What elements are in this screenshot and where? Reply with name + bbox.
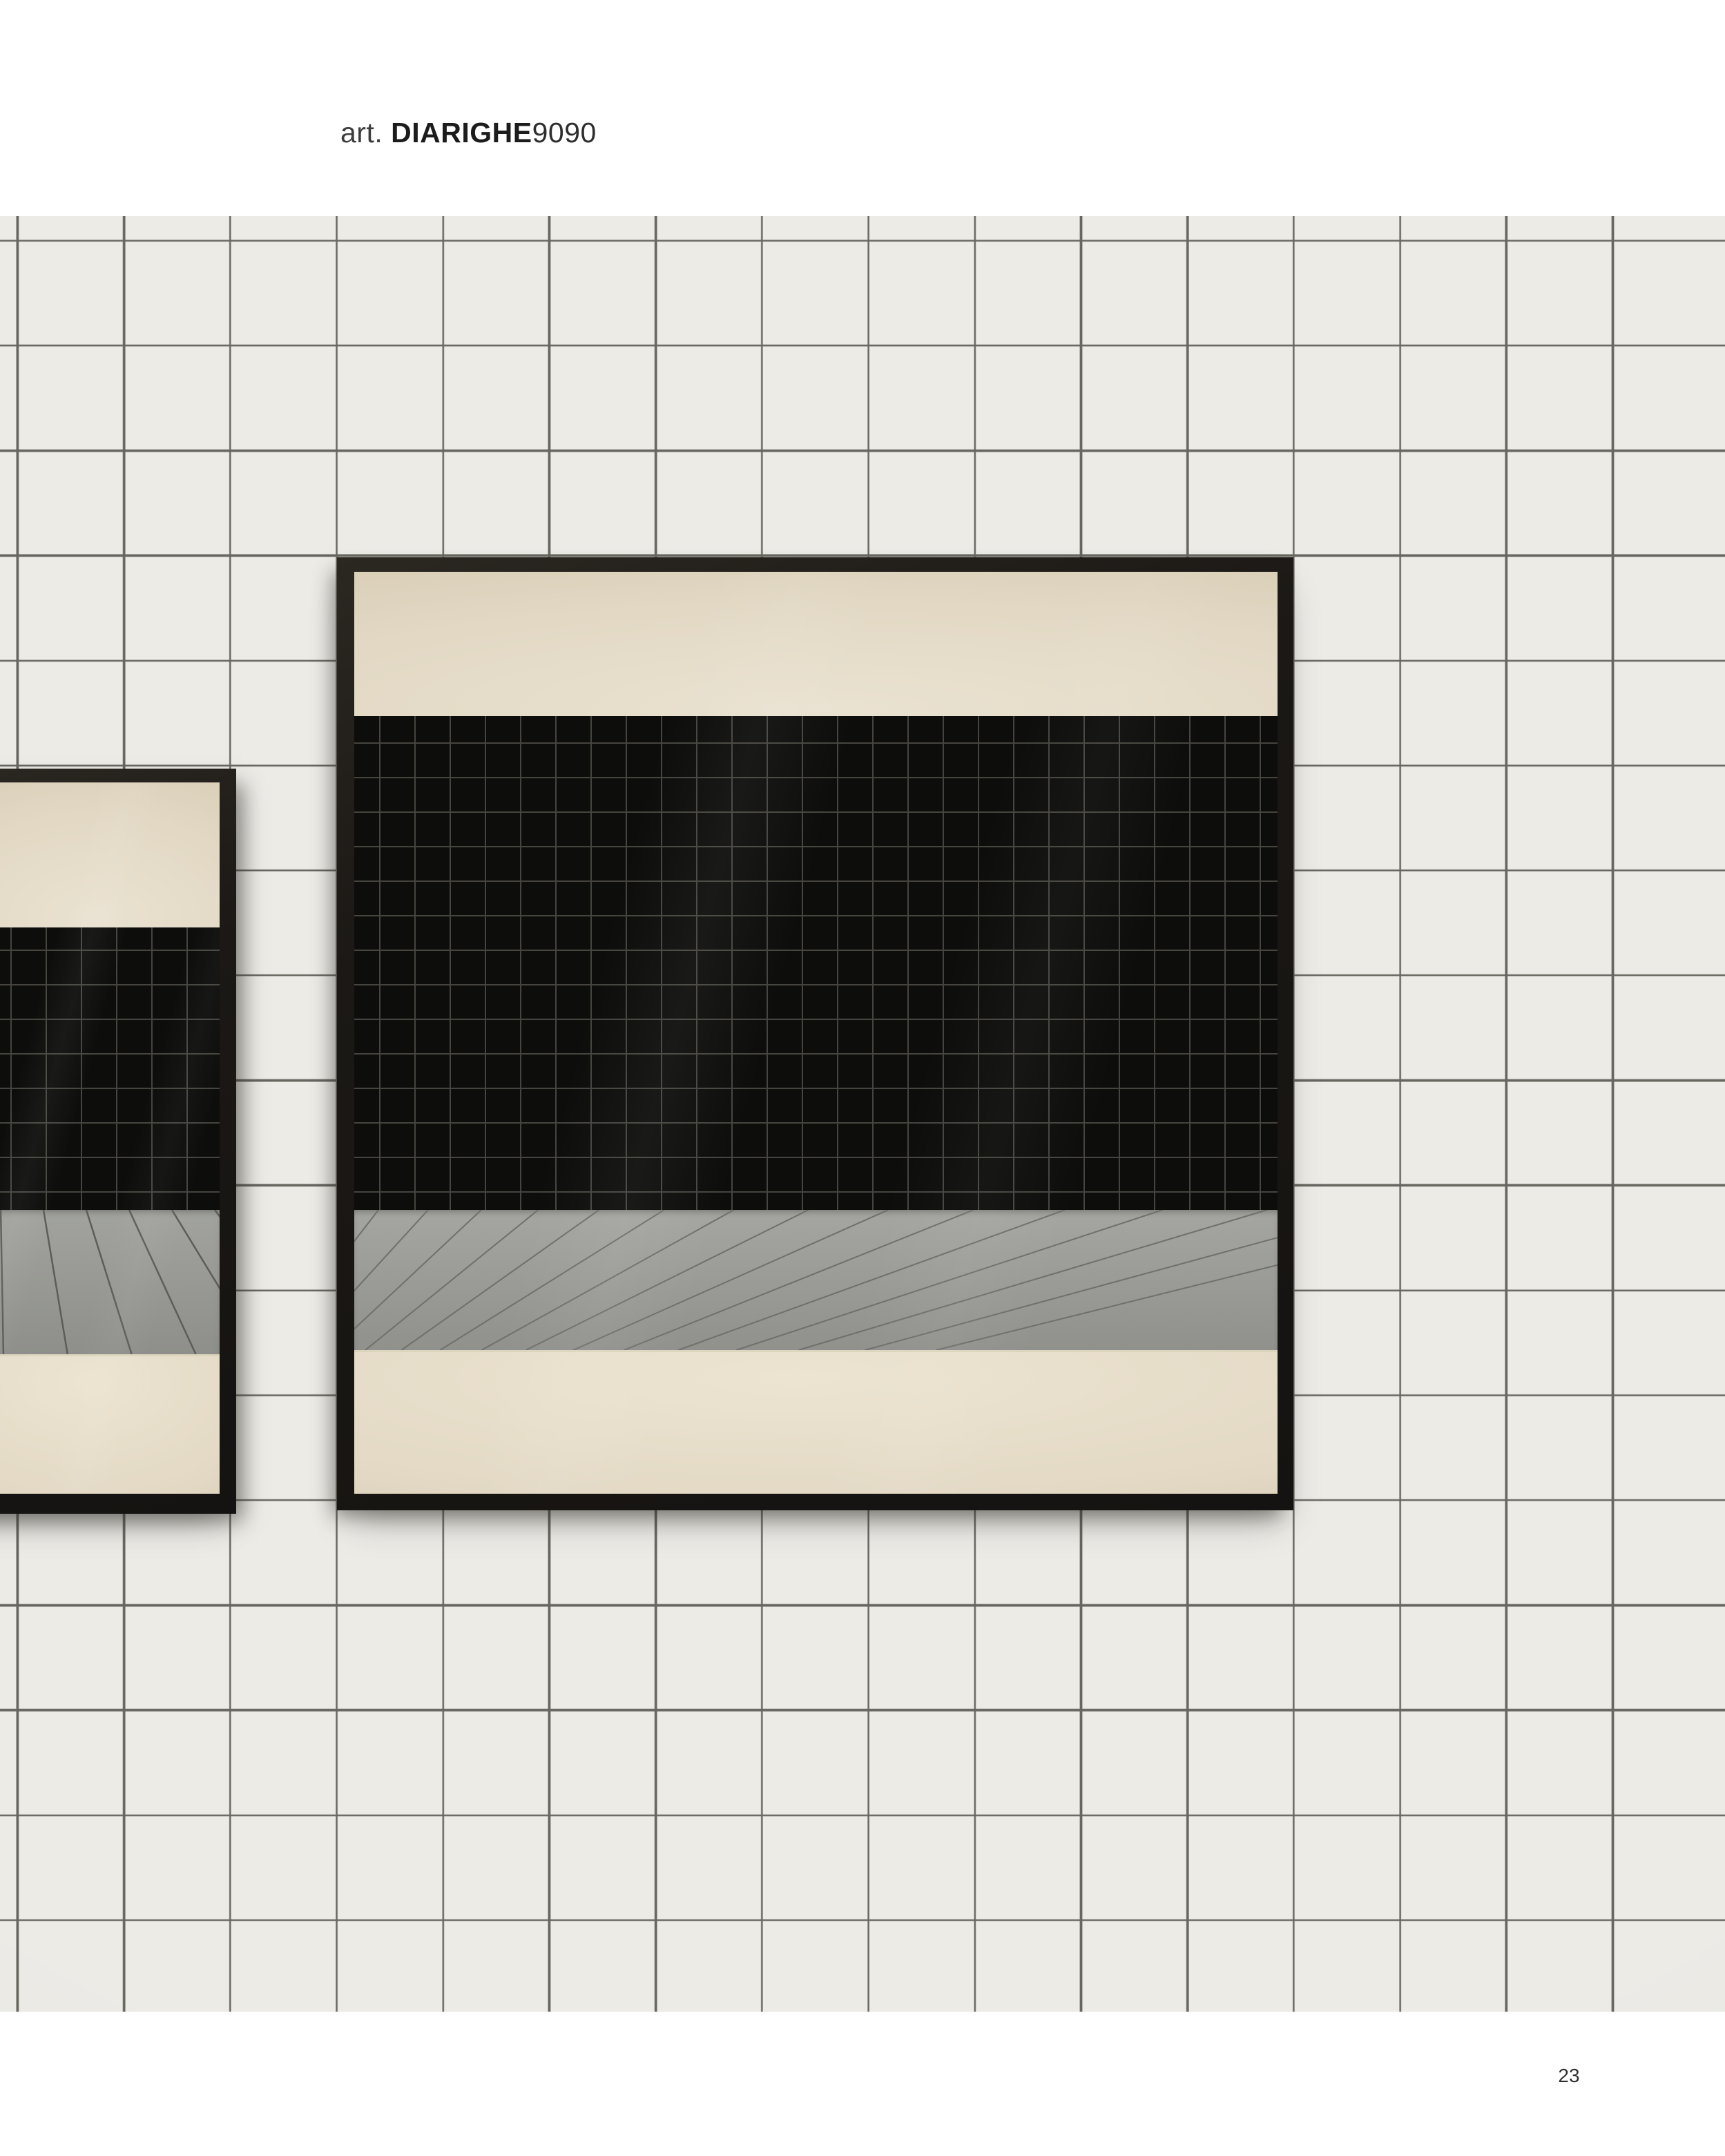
- article-prefix: art.: [340, 117, 391, 148]
- photo-tiled-wall: [0, 216, 1725, 2012]
- reflection-cream-bottom: [354, 1350, 1278, 1494]
- reflection-black-tile-wall: [354, 716, 1278, 1210]
- reflection-floor: [0, 1210, 220, 1354]
- reflection-floor: [354, 1210, 1278, 1350]
- article-name: DIARIGHE: [391, 117, 532, 148]
- mirror-small: [0, 769, 236, 1514]
- reflection-black-tile-wall: [0, 927, 220, 1210]
- page-number: 23: [1537, 2065, 1601, 2087]
- reflection-cream-top: [0, 782, 220, 927]
- article-number: 9090: [532, 117, 597, 148]
- reflection-cream-top: [354, 572, 1278, 716]
- mirror-large: [337, 557, 1293, 1510]
- article-label: art. DIARIGHE9090: [340, 117, 597, 148]
- reflection-floor-planks: [354, 1210, 1278, 1350]
- mirror-small-glass: [0, 782, 220, 1494]
- mirror-large-glass: [354, 572, 1278, 1494]
- reflection-cream-bottom: [0, 1354, 220, 1494]
- reflection-floor-planks: [0, 1210, 220, 1354]
